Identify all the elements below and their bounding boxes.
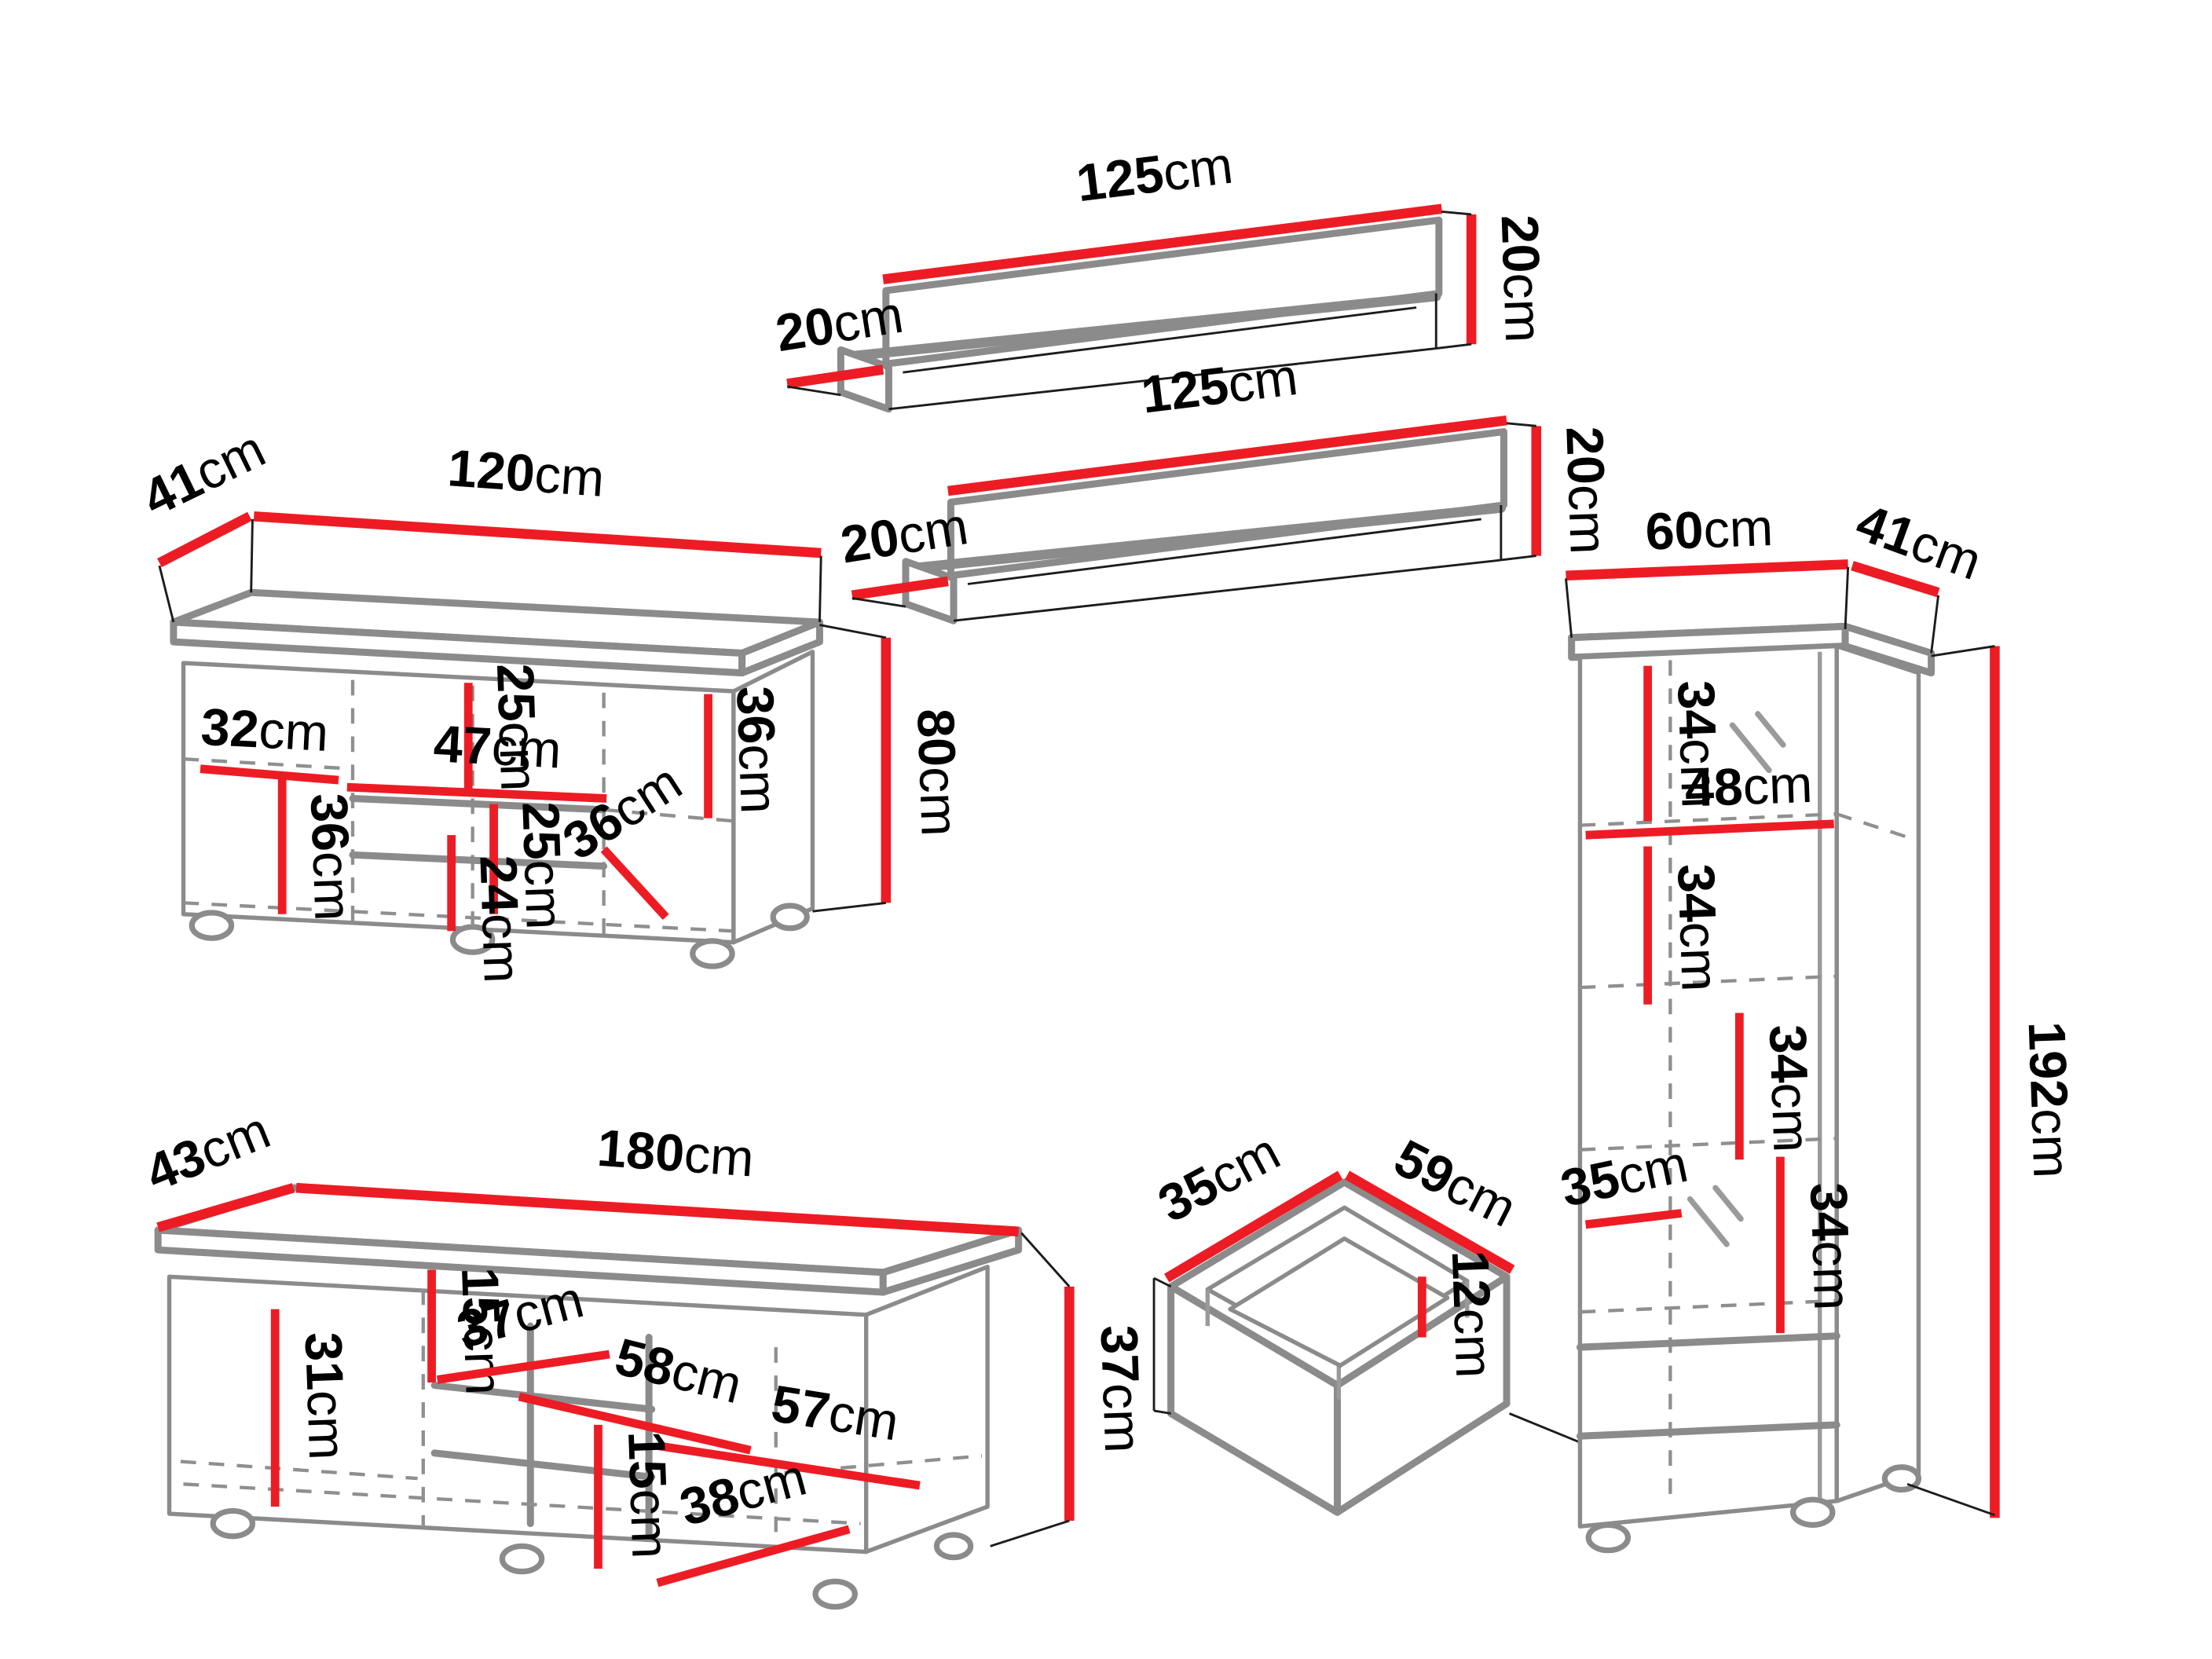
- shelf-top-depth-witness: [787, 386, 840, 395]
- tv-height-witness-a: [1021, 1233, 1069, 1287]
- sideboard: 41cm 120cm 80cm 25cm 47cm 36cm 32cm 25cm…: [134, 420, 969, 984]
- cabinet-witness-b: [1845, 567, 1848, 629]
- sideboard-witness-a: [159, 566, 174, 622]
- shelf-middle-depth-witness: [852, 598, 906, 606]
- shelf-middle-height-dim-label: 20cm: [1555, 426, 1617, 555]
- shelf-middle-width-dim-label: 125cm: [1138, 348, 1301, 425]
- sideboard-left-shelf-dim-label: 32cm: [200, 698, 330, 763]
- sideboard-width-dim-line: [254, 516, 821, 553]
- sideboard-height-witness-b: [812, 903, 885, 911]
- drawer-height-dim-label: 12cm: [1441, 1250, 1503, 1379]
- sideboard-height-witness-a: [819, 625, 885, 638]
- cabinet-height-witness-b: [1907, 1484, 1994, 1515]
- shelf-middle-height-witness-a: [1507, 423, 1536, 427]
- cabinet-section3-dim-label: 34cm: [1758, 1024, 1821, 1153]
- tv-height-dim-label: 37cm: [1090, 1324, 1152, 1454]
- sideboard-depth-dim-label: 41cm: [134, 420, 274, 529]
- cabinet-section2-dim-label: 34cm: [1666, 862, 1729, 992]
- sideboard-right-shelf-dim-label: 36cm: [725, 685, 788, 815]
- sideboard-middle-width-dim-label: 47cm: [432, 715, 562, 779]
- cabinet-height-witness-a: [1932, 646, 1995, 657]
- tv-stand: 43cm 180cm 37cm 31cm 15cm 37cm 58cm 57cm…: [138, 1101, 1152, 1607]
- shelf-top-height-dim-label: 20cm: [1490, 214, 1553, 343]
- sideboard-witness-b: [251, 519, 253, 592]
- cabinet-height-dim-label: 192cm: [2017, 1020, 2081, 1179]
- tv-width-dim-label: 180cm: [595, 1119, 756, 1188]
- furniture-dimensions-diagram: 125cm 20cm 20cm 125cm 20cm 20cm: [0, 0, 2212, 1659]
- cabinet-width-dim-line: [1566, 564, 1848, 575]
- shelf-middle-front-edge: [954, 560, 1501, 621]
- shelf-top-height-witness-a: [1441, 211, 1471, 214]
- sideboard-left-section-dim-label: 36cm: [299, 793, 362, 922]
- shelf-top-height-witness-b: [1436, 344, 1471, 348]
- wall-shelf-middle: 125cm 20cm 20cm: [837, 348, 1617, 621]
- tv-height-witness-b: [991, 1521, 1070, 1546]
- sideboard-width-dim-label: 120cm: [446, 439, 606, 508]
- furniture-dimensions-page: 125cm 20cm 20cm 125cm 20cm 20cm: [0, 0, 2212, 1659]
- cabinet-witness-a: [1566, 578, 1571, 637]
- sideboard-depth-dim-line: [159, 516, 250, 562]
- cabinet-foot-left: [1588, 1525, 1628, 1550]
- cabinet-section4-dim-label: 34cm: [1799, 1181, 1862, 1311]
- shelf-top-width-dim-label: 125cm: [1073, 137, 1236, 214]
- cabinet-witness-c: [1932, 595, 1939, 654]
- sideboard-foot-right: [693, 941, 732, 966]
- tv-depth-dim-label: 43cm: [138, 1101, 278, 1203]
- cabinet-foot-right: [1793, 1500, 1833, 1525]
- tv-foot-3: [815, 1581, 855, 1606]
- cabinet-width-dim-label: 60cm: [1644, 499, 1774, 562]
- sideboard-height-dim-label: 80cm: [906, 708, 969, 837]
- shelf-middle-height-witness-b: [1501, 556, 1536, 560]
- cabinet-inner-width-dim-label: 48cm: [1684, 756, 1814, 819]
- tv-lower-section-dim-label: 15cm: [617, 1430, 679, 1559]
- tv-foot-4: [936, 1535, 970, 1558]
- cabinet-right-face: [1837, 646, 1918, 1501]
- tv-left-section-dim-label: 31cm: [294, 1331, 357, 1461]
- sideboard-foot-left: [192, 913, 231, 938]
- tall-cabinet: 60cm 41cm 192cm 34cm 48cm 34cm 34cm 35cm…: [1556, 493, 2081, 1551]
- sideboard-middle-lower-dim-label: 24cm: [468, 855, 531, 984]
- cabinet-depth-dim-label: 41cm: [1849, 493, 1989, 591]
- sideboard-foot-back: [773, 906, 807, 928]
- tv-foot-1: [213, 1511, 252, 1536]
- tv-foot-2: [502, 1546, 541, 1571]
- sideboard-witness-c: [819, 556, 821, 622]
